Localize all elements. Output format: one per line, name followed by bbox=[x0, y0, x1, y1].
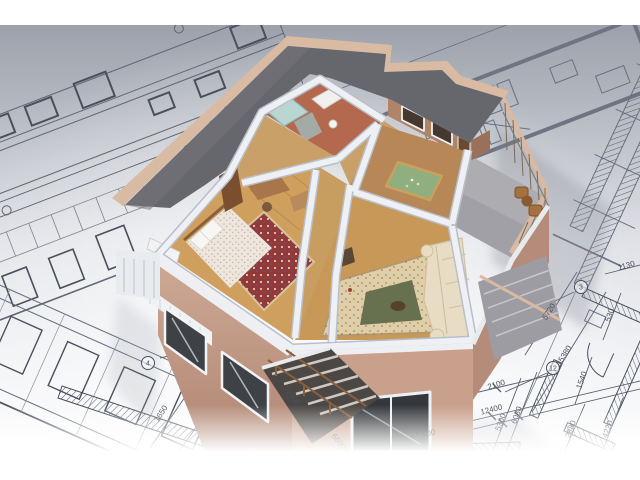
letterbox-top bbox=[0, 0, 640, 25]
toilet bbox=[329, 120, 337, 128]
axis-bubble-label: 12 bbox=[549, 365, 557, 372]
desk-chair bbox=[262, 202, 272, 212]
letterbox-bottom bbox=[0, 451, 640, 480]
coffee-table bbox=[391, 301, 406, 311]
left-balcony bbox=[116, 250, 160, 300]
axis-bubble-label: 4 bbox=[146, 360, 150, 367]
axis-bubble-label: 3 bbox=[579, 284, 583, 291]
architectural-render: 1650162001240023006600210053006080113053… bbox=[0, 0, 640, 480]
terrace-table bbox=[522, 196, 533, 207]
scene-canvas: 1650162001240023006600210053006080113053… bbox=[0, 0, 640, 480]
bottom-fade bbox=[0, 405, 640, 452]
